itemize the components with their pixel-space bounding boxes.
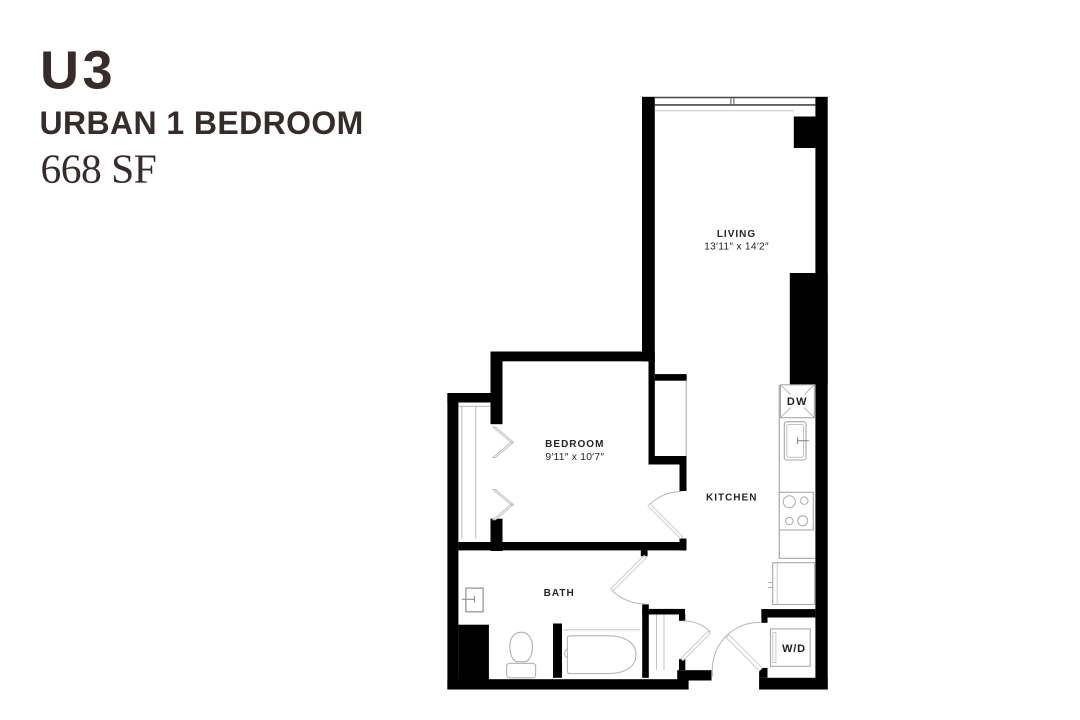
- svg-text:BEDROOM: BEDROOM: [545, 439, 604, 450]
- svg-text:URBAN 1 BEDROOM: URBAN 1 BEDROOM: [40, 105, 364, 141]
- svg-text:668 SF: 668 SF: [41, 145, 157, 191]
- svg-text:U3: U3: [40, 40, 116, 100]
- svg-text:W/D: W/D: [782, 643, 806, 655]
- svg-text:DW: DW: [787, 396, 808, 408]
- svg-text:LIVING: LIVING: [717, 229, 756, 240]
- svg-text:KITCHEN: KITCHEN: [706, 493, 757, 504]
- svg-text:9′11″ x 10′7″: 9′11″ x 10′7″: [545, 452, 604, 463]
- svg-text:BATH: BATH: [544, 588, 575, 599]
- svg-text:13′11″ x 14′2″: 13′11″ x 14′2″: [704, 241, 769, 252]
